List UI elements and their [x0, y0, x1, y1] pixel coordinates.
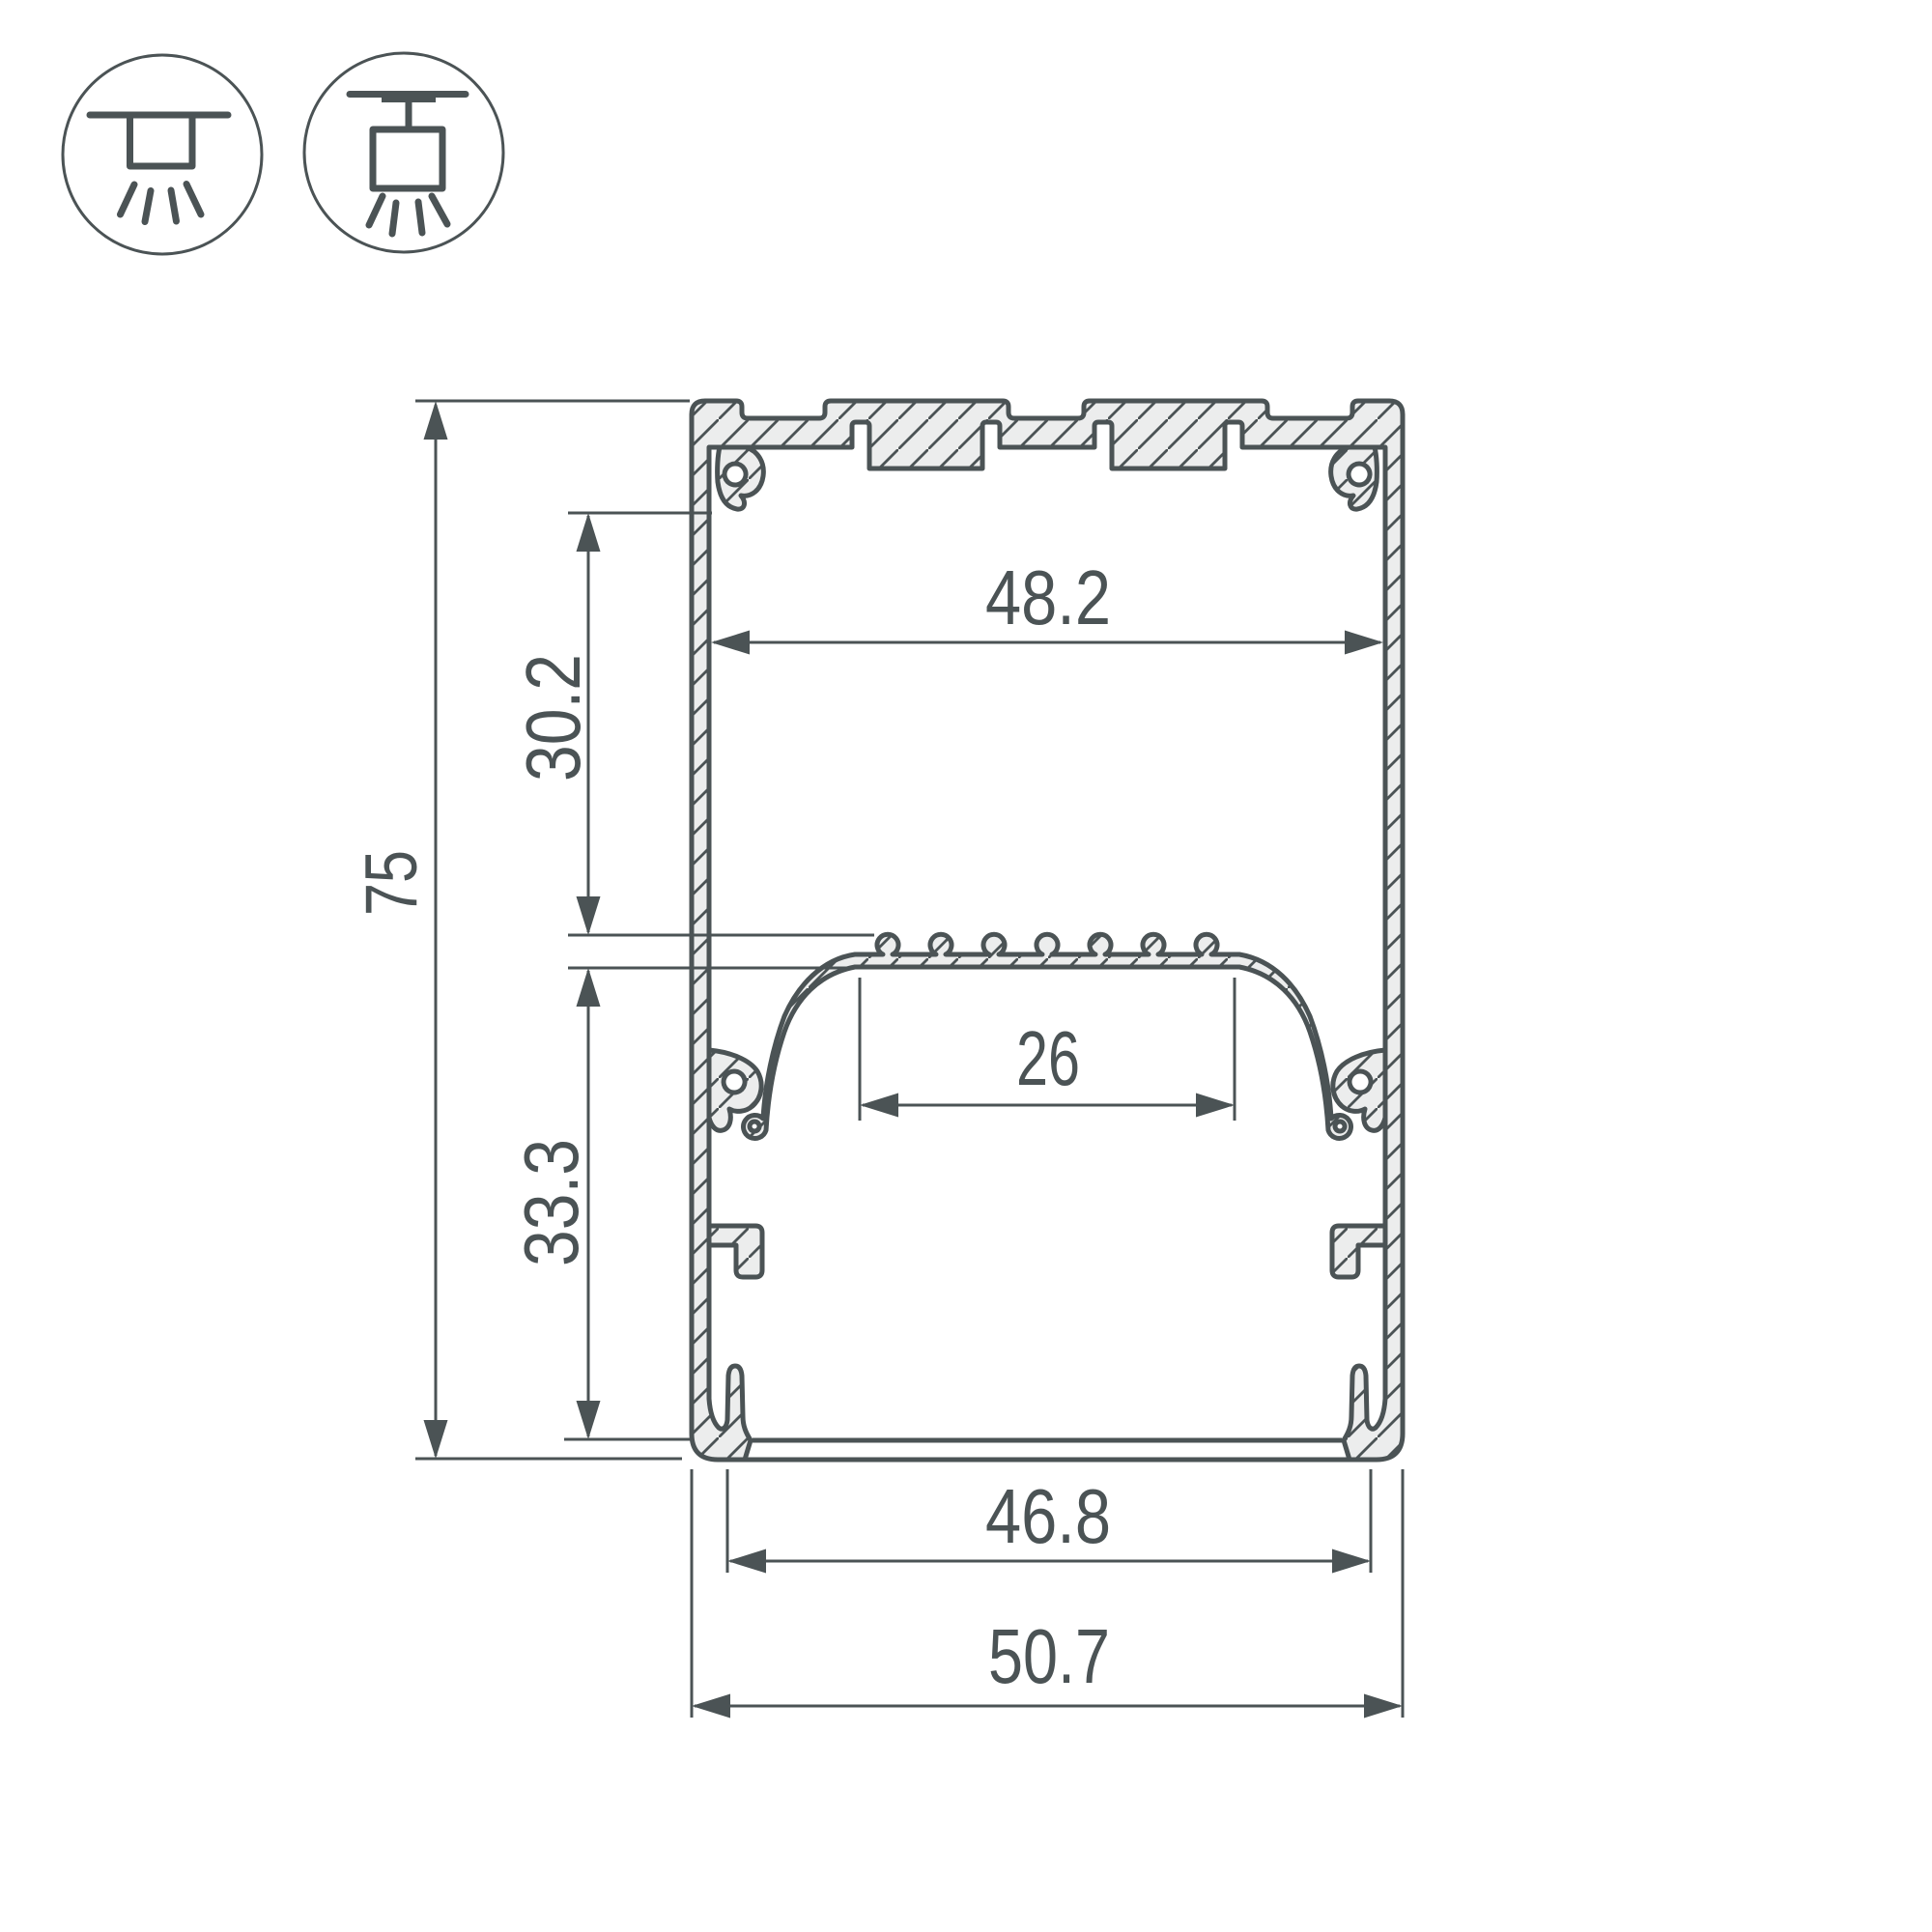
svg-text:75: 75: [351, 850, 433, 916]
svg-text:26: 26: [1016, 1015, 1080, 1101]
svg-text:48.2: 48.2: [985, 554, 1111, 640]
svg-text:50.7: 50.7: [988, 1613, 1110, 1699]
svg-text:33.3: 33.3: [508, 1139, 594, 1266]
svg-text:46.8: 46.8: [985, 1473, 1111, 1559]
svg-text:30.2: 30.2: [510, 654, 596, 781]
